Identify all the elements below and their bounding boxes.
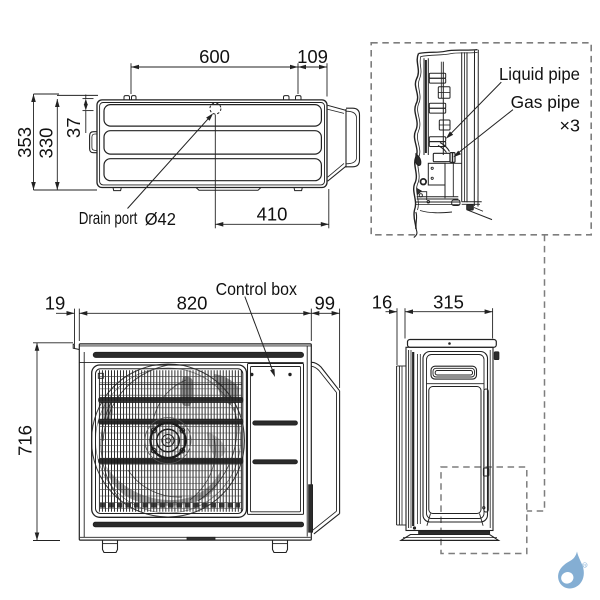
svg-text:410: 410 xyxy=(257,204,288,225)
svg-text:330: 330 xyxy=(35,128,56,159)
svg-text:716: 716 xyxy=(15,425,36,456)
svg-text:19: 19 xyxy=(45,293,66,314)
svg-text:37: 37 xyxy=(63,118,84,139)
svg-text:99: 99 xyxy=(315,293,336,314)
svg-text:353: 353 xyxy=(14,127,35,158)
svg-text:315: 315 xyxy=(433,291,464,312)
svg-text:Liquid pipe: Liquid pipe xyxy=(499,64,580,84)
svg-text:Control box: Control box xyxy=(216,279,298,299)
svg-text:R: R xyxy=(583,563,587,569)
svg-text:600: 600 xyxy=(199,46,230,67)
svg-text:820: 820 xyxy=(177,293,208,314)
svg-text:×3: ×3 xyxy=(560,116,581,136)
svg-text:Ø42: Ø42 xyxy=(145,209,176,229)
svg-text:Drain port: Drain port xyxy=(79,208,138,228)
svg-text:109: 109 xyxy=(297,46,328,67)
svg-text:16: 16 xyxy=(372,291,393,312)
svg-text:Gas pipe: Gas pipe xyxy=(511,92,580,112)
